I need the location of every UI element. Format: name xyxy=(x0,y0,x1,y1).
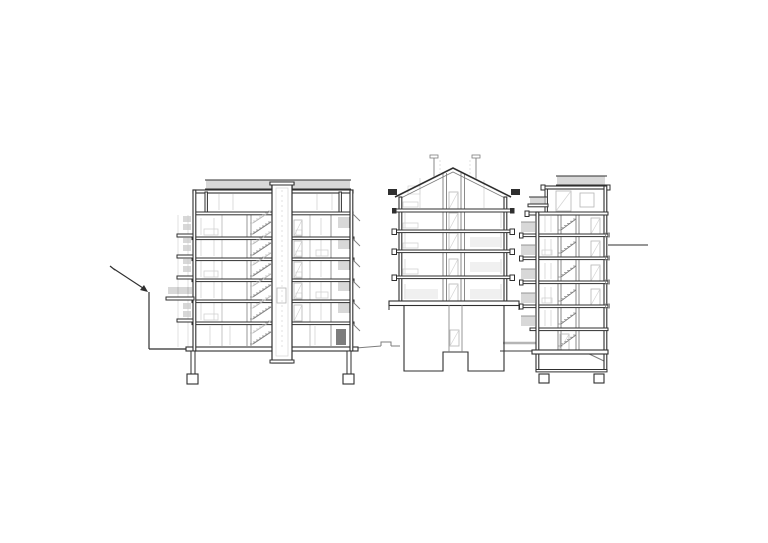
architectural-section-sheet xyxy=(0,0,768,543)
building-left-section xyxy=(166,180,360,384)
building-middle-section xyxy=(388,155,520,371)
section-drawing xyxy=(0,0,768,543)
building-right-section xyxy=(520,176,611,383)
